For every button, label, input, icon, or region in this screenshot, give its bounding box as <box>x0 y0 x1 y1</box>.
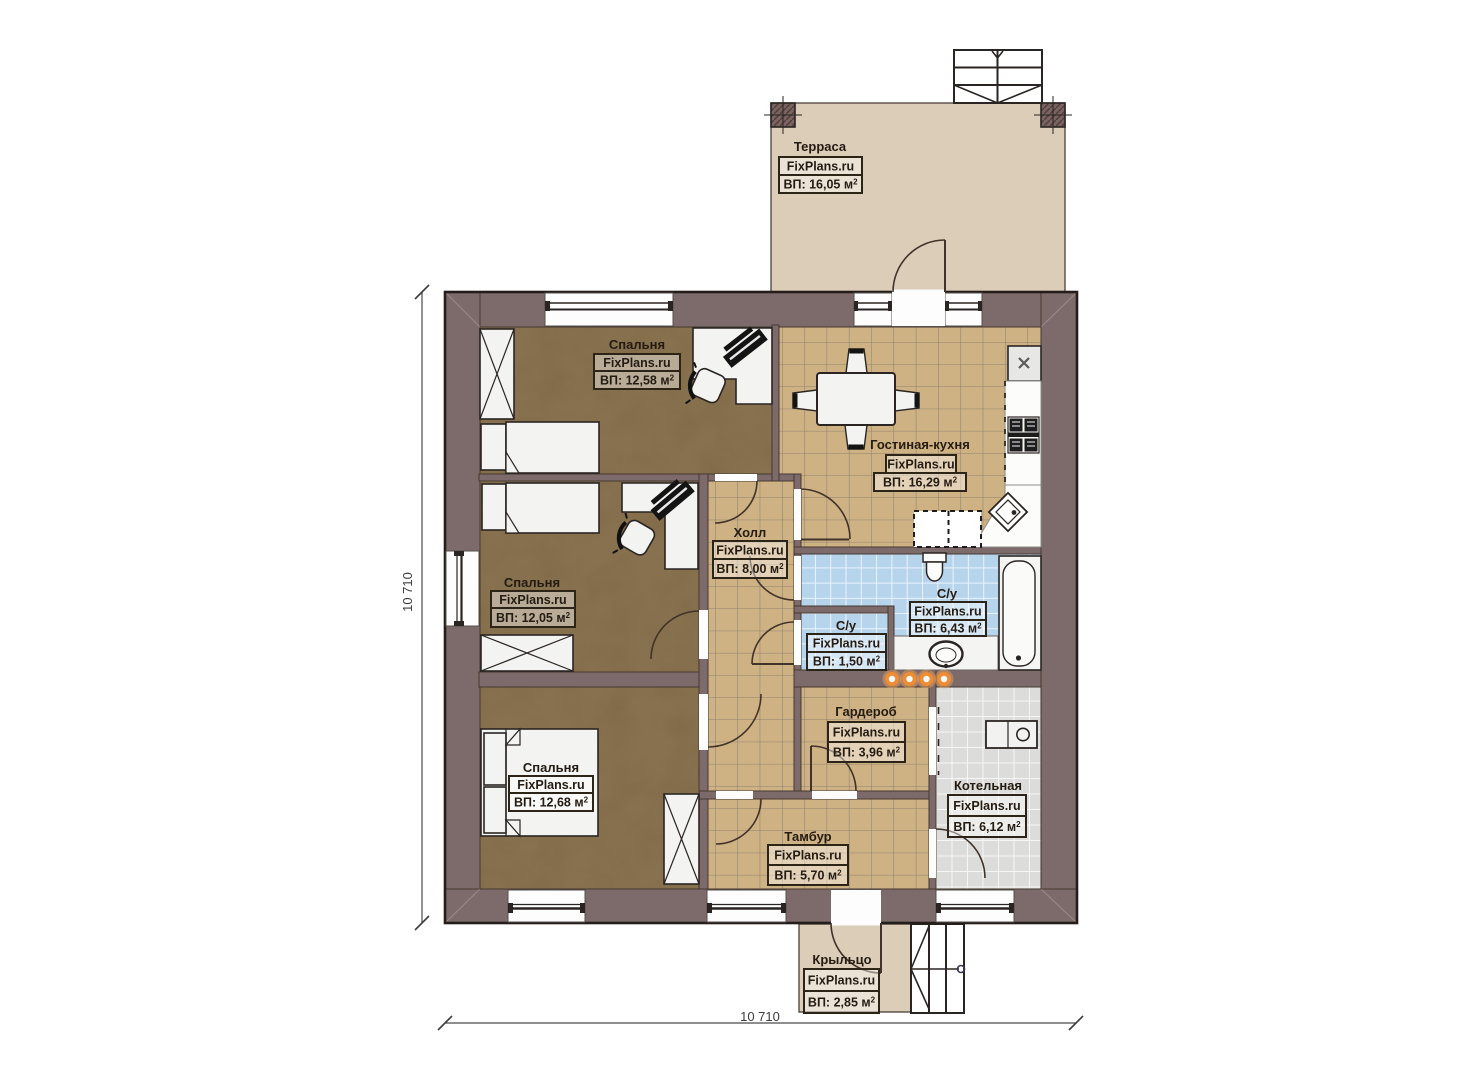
svg-text:Гардероб: Гардероб <box>835 704 896 719</box>
svg-text:Спальня: Спальня <box>504 575 560 590</box>
svg-text:Холл: Холл <box>734 525 767 540</box>
svg-text:FixPlans.ru: FixPlans.ru <box>603 356 670 370</box>
svg-text:ВП: 12,58 м2: ВП: 12,58 м2 <box>600 374 675 388</box>
svg-text:ВП: 8,00 м2: ВП: 8,00 м2 <box>716 562 784 576</box>
svg-text:ВП: 12,05 м2: ВП: 12,05 м2 <box>496 611 571 625</box>
svg-text:FixPlans.ru: FixPlans.ru <box>833 726 900 740</box>
svg-text:Спальня: Спальня <box>609 337 665 352</box>
svg-text:Тамбур: Тамбур <box>784 829 831 844</box>
svg-text:ВП: 1,50 м2: ВП: 1,50 м2 <box>813 655 881 669</box>
svg-text:FixPlans.ru: FixPlans.ru <box>813 637 880 651</box>
svg-text:ВП: 6,43 м2: ВП: 6,43 м2 <box>914 622 982 636</box>
svg-text:Гостиная-кухня: Гостиная-кухня <box>870 437 970 452</box>
svg-text:FixPlans.ru: FixPlans.ru <box>887 458 954 472</box>
svg-text:FixPlans.ru: FixPlans.ru <box>517 778 584 792</box>
svg-text:ВП: 16,05 м2: ВП: 16,05 м2 <box>783 178 858 192</box>
svg-text:ВП: 3,96 м2: ВП: 3,96 м2 <box>833 746 901 760</box>
svg-text:ВП: 6,12 м2: ВП: 6,12 м2 <box>953 820 1021 834</box>
svg-text:Крыльцо: Крыльцо <box>812 952 871 967</box>
svg-text:С/у: С/у <box>836 618 857 633</box>
svg-text:FixPlans.ru: FixPlans.ru <box>499 593 566 607</box>
svg-text:Спальня: Спальня <box>523 760 579 775</box>
svg-text:ВП: 2,85 м2: ВП: 2,85 м2 <box>808 996 876 1010</box>
svg-text:10 710: 10 710 <box>740 1009 780 1024</box>
svg-text:FixPlans.ru: FixPlans.ru <box>808 974 875 988</box>
svg-text:FixPlans.ru: FixPlans.ru <box>716 544 783 558</box>
svg-text:10 710: 10 710 <box>400 572 415 612</box>
svg-text:FixPlans.ru: FixPlans.ru <box>953 799 1020 813</box>
svg-text:FixPlans.ru: FixPlans.ru <box>774 849 841 863</box>
svg-text:Терраса: Терраса <box>794 139 847 154</box>
svg-text:ВП: 5,70 м2: ВП: 5,70 м2 <box>774 869 842 883</box>
svg-text:ВП: 12,68 м2: ВП: 12,68 м2 <box>514 796 589 810</box>
svg-text:FixPlans.ru: FixPlans.ru <box>914 605 981 619</box>
svg-text:С/у: С/у <box>937 586 958 601</box>
svg-text:FixPlans.ru: FixPlans.ru <box>787 160 854 174</box>
svg-text:Котельная: Котельная <box>954 778 1022 793</box>
svg-text:ВП: 16,29 м2: ВП: 16,29 м2 <box>883 476 958 490</box>
